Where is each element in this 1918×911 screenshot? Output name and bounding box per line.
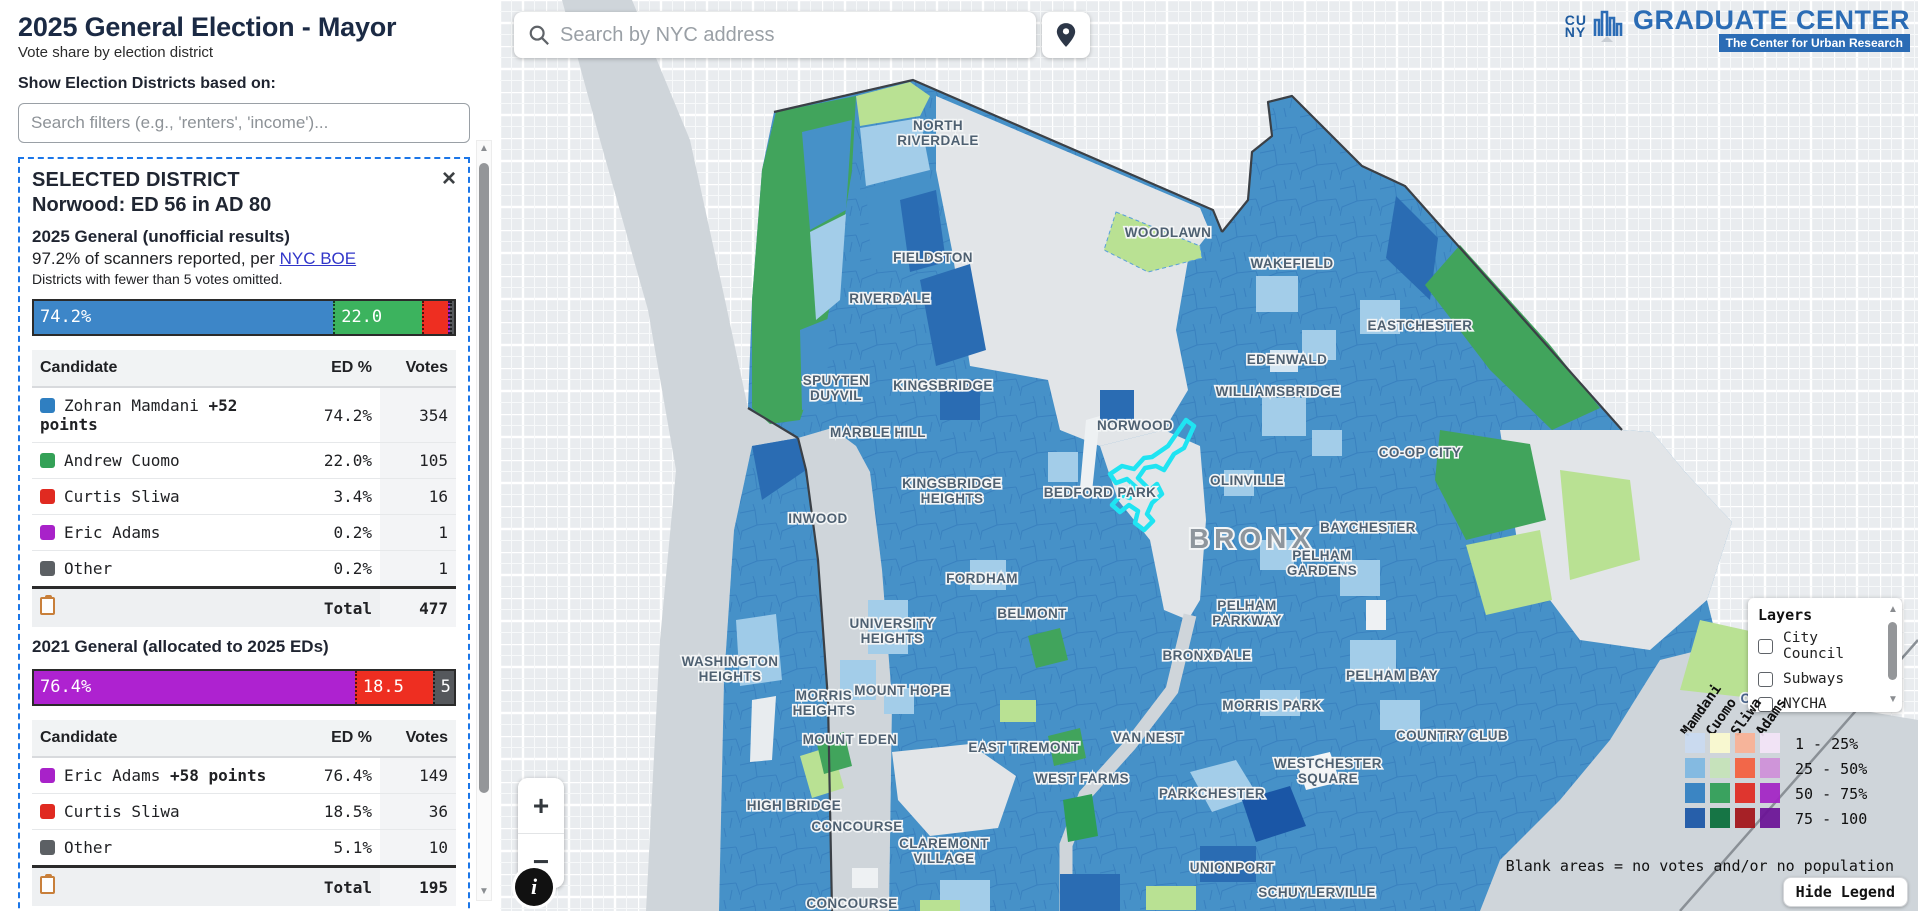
- map-canvas[interactable]: NORTHRIVERDALEWOODLAWNFIELDSTONWAKEFIELD…: [500, 0, 1918, 911]
- layers-list: City CouncilSubwaysNYCHA: [1758, 630, 1884, 712]
- candidate-votes: 1: [380, 515, 456, 551]
- search-icon: [528, 24, 550, 46]
- neighborhood-label: FORDHAM: [946, 571, 1018, 586]
- clipboard-icon[interactable]: [40, 876, 55, 894]
- neighborhood-label: WOODLAWN: [1125, 225, 1211, 240]
- district-patch: [1146, 886, 1196, 910]
- neighborhood-label: WILLIAMSBRIDGE: [1216, 384, 1341, 399]
- bar-segment-sliwa: [422, 301, 448, 334]
- neighborhood-label: WAKEFIELD: [1250, 256, 1333, 271]
- filter-search-input[interactable]: [18, 103, 470, 143]
- col-votes: Votes: [380, 720, 456, 757]
- blank-areas-note: Blank areas = no votes and/or no populat…: [1506, 857, 1894, 875]
- clipboard-icon[interactable]: [40, 597, 55, 615]
- neighborhood-label: MARBLE HILL: [830, 425, 926, 440]
- neighborhood-label: SCHUYLERVILLE: [1258, 885, 1375, 900]
- bar-segment-sliwa: 18.5: [355, 671, 433, 704]
- neighborhood-label: EASTCHESTER: [1368, 318, 1473, 333]
- total-votes: 195: [380, 867, 456, 907]
- logo-title: GRADUATE CENTER: [1633, 6, 1910, 34]
- layer-item-city-council[interactable]: City Council: [1758, 630, 1884, 662]
- blank-district: [1366, 600, 1386, 630]
- logo-text: GRADUATE CENTER The Center for Urban Res…: [1633, 6, 1910, 52]
- nyc-boe-link[interactable]: NYC BOE: [280, 249, 357, 268]
- col-edpct: ED %: [292, 720, 380, 757]
- neighborhood-label: BEDFORD PARK: [1044, 485, 1157, 500]
- neighborhood-label: UNIONPORT: [1190, 860, 1275, 875]
- scroll-down-icon[interactable]: ▼: [477, 884, 491, 900]
- candidate-pct: 5.1%: [292, 830, 380, 867]
- layer-label: City Council: [1783, 630, 1884, 662]
- scroll-down-icon[interactable]: ▼: [1886, 692, 1900, 708]
- layer-checkbox[interactable]: [1758, 672, 1773, 687]
- candidate-name: Eric Adams: [64, 766, 160, 785]
- graduate-center-logo: CUNY GRADUATE CENTER The Center for Urba…: [1565, 6, 1910, 52]
- scrollbar-thumb[interactable]: [1888, 622, 1897, 680]
- hide-legend-button[interactable]: Hide Legend: [1783, 877, 1908, 907]
- candidate-color-swatch: [40, 453, 55, 468]
- total-label: Total: [292, 867, 380, 907]
- neighborhood-label: MOUNT HOPE: [854, 683, 950, 698]
- candidate-row: Curtis Sliwa18.5%36: [32, 794, 456, 830]
- total-row: Total477: [32, 588, 456, 628]
- results-table-2021: Candidate ED % Votes Eric Adams +58 poin…: [32, 720, 456, 906]
- neighborhood-label: BELMONT: [997, 606, 1067, 621]
- blank-district: [750, 696, 776, 762]
- district-patch: [1048, 452, 1078, 482]
- selected-district-name: Norwood: ED 56 in AD 80: [32, 194, 456, 217]
- district-patch: [1060, 874, 1120, 911]
- district-patch: [1312, 430, 1342, 456]
- selected-district-heading: SELECTED DISTRICT: [32, 169, 456, 192]
- neighborhood-label: INWOOD: [788, 511, 847, 526]
- scanners-text: 97.2% of scanners reported, per: [32, 249, 280, 268]
- candidate-row: Other5.1%10: [32, 830, 456, 867]
- filter-label: Show Election Districts based on:: [18, 75, 470, 93]
- candidate-row: Zohran Mamdani +52 points74.2%354: [32, 387, 456, 443]
- candidate-pct: 22.0%: [292, 443, 380, 479]
- locate-pin-button[interactable]: [1042, 12, 1090, 58]
- map-search-bar: [514, 12, 1090, 58]
- neighborhood-label: EAST TREMONT: [968, 740, 1080, 755]
- district-patch: [1063, 794, 1098, 842]
- candidate-name: Curtis Sliwa: [64, 487, 180, 506]
- candidate-votes: 105: [380, 443, 456, 479]
- district-patch: [1000, 700, 1036, 722]
- bar-segment-mamdani: 74.2%: [34, 301, 333, 334]
- skyline-icon: [1593, 6, 1627, 42]
- election-map-svg[interactable]: NORTHRIVERDALEWOODLAWNFIELDSTONWAKEFIELD…: [500, 0, 1918, 911]
- app-window: 2025 General Election - Mayor Vote share…: [0, 0, 1918, 911]
- total-row: Total195: [32, 867, 456, 907]
- candidate-pct: 0.2%: [292, 551, 380, 588]
- layer-item-nycha[interactable]: NYCHA: [1758, 696, 1884, 712]
- neighborhood-label: VAN NEST: [1113, 730, 1184, 745]
- bar-segment-other: 5.1: [433, 671, 454, 704]
- district-patch: [1380, 700, 1420, 730]
- omitted-note: Districts with fewer than 5 votes omitte…: [32, 271, 456, 287]
- candidate-color-swatch: [40, 804, 55, 819]
- layers-panel: Layers City CouncilSubwaysNYCHA ▲ ▼: [1748, 598, 1902, 712]
- neighborhood-label: HIGH BRIDGE: [747, 798, 841, 813]
- neighborhood-label: PELHAM BAY: [1346, 668, 1438, 683]
- neighborhood-label: MORRIS PARK: [1222, 698, 1321, 713]
- neighborhood-label: CONCOURSE: [811, 819, 902, 834]
- sidebar-scrollbar[interactable]: ▲ ▼: [476, 140, 492, 901]
- col-edpct: ED %: [292, 350, 380, 387]
- candidate-pct: 74.2%: [292, 387, 380, 443]
- total-votes: 477: [380, 588, 456, 628]
- neighborhood-label: EDENWALD: [1247, 352, 1327, 367]
- page-subtitle: Vote share by election district: [18, 44, 470, 61]
- candidate-name: Other: [64, 838, 112, 857]
- vote-share-bar-2025: 74.2%22.0: [32, 299, 456, 336]
- candidate-row: Curtis Sliwa3.4%16: [32, 479, 456, 515]
- neighborhood-label: MOUNT EDEN: [803, 732, 898, 747]
- vote-share-bar-2021: 76.4%18.55.1: [32, 669, 456, 706]
- neighborhood-label: MORRISHEIGHTS: [793, 688, 856, 718]
- district-patch: [1262, 398, 1306, 436]
- close-icon[interactable]: ×: [442, 169, 456, 189]
- scroll-up-icon[interactable]: ▲: [1886, 602, 1900, 618]
- zoom-in-button[interactable]: +: [518, 778, 564, 833]
- bar-segment-other: [450, 301, 454, 334]
- candidate-row: Eric Adams0.2%1: [32, 515, 456, 551]
- map-pin-icon: [1055, 22, 1077, 48]
- candidate-name: Eric Adams: [64, 523, 160, 542]
- candidate-votes: 1: [380, 551, 456, 588]
- neighborhood-label: CO-OP CITY: [1379, 445, 1462, 460]
- candidate-name: Other: [64, 559, 112, 578]
- bar-segment-adams: 76.4%: [34, 671, 355, 704]
- selected-district-panel: × SELECTED DISTRICT Norwood: ED 56 in AD…: [18, 157, 470, 911]
- candidate-color-swatch: [40, 768, 55, 783]
- candidate-row: Eric Adams +58 points76.4%149: [32, 757, 456, 794]
- candidate-votes: 10: [380, 830, 456, 867]
- page-title: 2025 General Election - Mayor: [18, 12, 470, 43]
- neighborhood-label: FIELDSTON: [893, 250, 973, 265]
- candidate-color-swatch: [40, 525, 55, 540]
- district-patch: [920, 900, 960, 911]
- candidate-color-swatch: [40, 489, 55, 504]
- candidate-pct: 18.5%: [292, 794, 380, 830]
- cuny-mark: CUNY: [1565, 14, 1587, 38]
- col-candidate: Candidate: [32, 350, 292, 387]
- layers-scrollbar[interactable]: ▲ ▼: [1886, 602, 1900, 708]
- neighborhood-label: RIVERDALE: [849, 291, 931, 306]
- neighborhood-label: UNIVERSITYHEIGHTS: [849, 616, 934, 646]
- info-button[interactable]: i: [515, 868, 553, 906]
- neighborhood-label: PELHAMPARKWAY: [1212, 598, 1282, 628]
- district-patch: [1256, 276, 1298, 312]
- section-title-2021: 2021 General (allocated to 2025 EDs): [32, 637, 456, 657]
- layer-checkbox[interactable]: [1758, 697, 1773, 712]
- section-title-2025: 2025 General (unofficial results): [32, 227, 456, 247]
- candidate-color-swatch: [40, 398, 55, 413]
- neighborhood-label: BRONXDALE: [1162, 648, 1251, 663]
- bar-segment-cuomo: 22.0: [333, 301, 422, 334]
- candidate-votes: 36: [380, 794, 456, 830]
- candidate-votes: 149: [380, 757, 456, 794]
- candidate-name: Zohran Mamdani: [64, 396, 199, 415]
- candidate-row: Andrew Cuomo22.0%105: [32, 443, 456, 479]
- scroll-up-icon[interactable]: ▲: [477, 141, 491, 157]
- neighborhood-label: BAYCHESTER: [1320, 520, 1416, 535]
- neighborhood-label: OLINVILLE: [1210, 473, 1284, 488]
- candidate-pct: 0.2%: [292, 515, 380, 551]
- candidate-votes: 354: [380, 387, 456, 443]
- candidate-votes: 16: [380, 479, 456, 515]
- address-search-input[interactable]: [560, 24, 1022, 47]
- total-label: Total: [292, 588, 380, 628]
- blank-district: [852, 868, 878, 888]
- neighborhood-label: COUNTRY CLUB: [1396, 728, 1508, 743]
- candidate-row: Other0.2%1: [32, 551, 456, 588]
- neighborhood-label: KINGSBRIDGE: [893, 378, 993, 393]
- logo-subtitle: The Center for Urban Research: [1719, 34, 1910, 52]
- candidate-name: Andrew Cuomo: [64, 451, 180, 470]
- scrollbar-thumb[interactable]: [479, 163, 489, 793]
- layer-checkbox[interactable]: [1758, 639, 1773, 654]
- neighborhood-label: SPUYTENDUYVIL: [803, 373, 870, 403]
- address-search-box[interactable]: [514, 12, 1036, 58]
- col-votes: Votes: [380, 350, 456, 387]
- candidate-name: Curtis Sliwa: [64, 802, 180, 821]
- sidebar: 2025 General Election - Mayor Vote share…: [0, 0, 500, 911]
- layer-item-subways[interactable]: Subways: [1758, 671, 1884, 687]
- candidate-color-swatch: [40, 840, 55, 855]
- margin-badge: +58 points: [170, 766, 266, 785]
- col-candidate: Candidate: [32, 720, 292, 757]
- layer-label: Subways: [1783, 671, 1844, 687]
- candidate-pct: 3.4%: [292, 479, 380, 515]
- layers-title: Layers: [1758, 606, 1884, 624]
- borough-label: BRONX: [1189, 523, 1315, 554]
- candidate-pct: 76.4%: [292, 757, 380, 794]
- neighborhood-label: WEST FARMS: [1035, 771, 1129, 786]
- layer-label: NYCHA: [1783, 696, 1827, 712]
- results-table-2025: Candidate ED % Votes Zohran Mamdani +52 …: [32, 350, 456, 627]
- neighborhood-label: NORWOOD: [1097, 418, 1173, 433]
- neighborhood-label: PARKCHESTER: [1159, 786, 1265, 801]
- candidate-color-swatch: [40, 561, 55, 576]
- neighborhood-label: CONCOURSE: [806, 896, 897, 911]
- scanners-reported: 97.2% of scanners reported, per NYC BOE: [32, 249, 456, 269]
